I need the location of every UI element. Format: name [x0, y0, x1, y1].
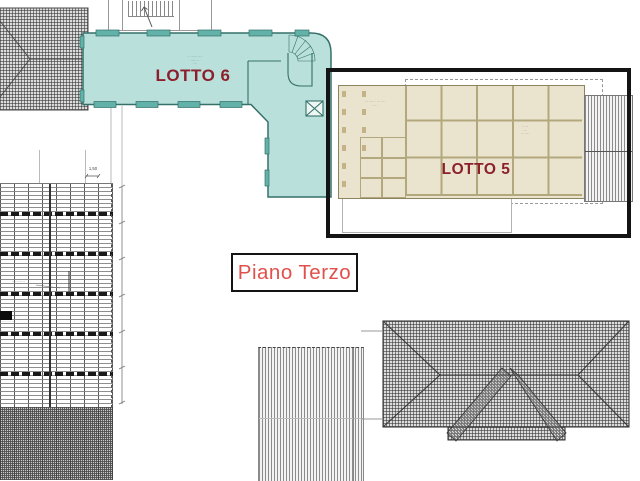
roof-weave-bottom-left [0, 407, 113, 480]
floor-title-text: Piano Terzo [238, 261, 351, 285]
lotto6-label-text: LOTTO 6 [156, 66, 231, 85]
framing-centerline [49, 184, 51, 408]
framing-beam [0, 212, 113, 216]
black-patch-caption: ····· ···· ·· [0, 320, 34, 324]
caption-text: ····· ···· ·· [0, 320, 14, 324]
roof-connector-lines [361, 331, 383, 419]
lotto6-partitions [248, 53, 312, 104]
roof-bottom-right-bump [448, 427, 565, 440]
floor-plan-canvas: ····· ···· ·· ··· ······ ··· ···· ··· · [0, 0, 640, 480]
lotto6-label: LOTTO 6 [148, 66, 238, 86]
framing-beam [0, 252, 113, 256]
lotto5-frame [326, 68, 631, 238]
framing-dashed-edge [111, 184, 112, 408]
framing-beam [0, 332, 113, 336]
dim-ticks-150 [85, 174, 100, 178]
curved-stair-icon [289, 35, 315, 61]
dim-label-150: 1,50 [86, 167, 99, 171]
striped-roof-divider [259, 418, 363, 419]
dim-label-text: 1,50 [89, 167, 97, 171]
roof-framing-plan [0, 183, 113, 408]
roof-bottom-right [383, 321, 629, 427]
lotto6-piers [80, 30, 309, 186]
framing-beam [0, 292, 113, 296]
extension-lines [40, 106, 123, 186]
framing-beam [0, 372, 113, 376]
roof-top-left [0, 8, 88, 110]
elevator-icon [306, 101, 323, 116]
framing-leader-note: ···· ···· ·· [12, 280, 37, 284]
floor-title-box: Piano Terzo [231, 253, 358, 292]
striped-roof-inner-edge [353, 348, 354, 481]
roof-striped-bottom-center [258, 347, 364, 481]
stair-treads [128, 1, 174, 17]
framing-dimension-line [119, 185, 125, 404]
note-line: ···· ···· ·· [12, 280, 25, 284]
lotto6-note: ·· ······ ···· ····· ·· ··· [182, 55, 207, 66]
